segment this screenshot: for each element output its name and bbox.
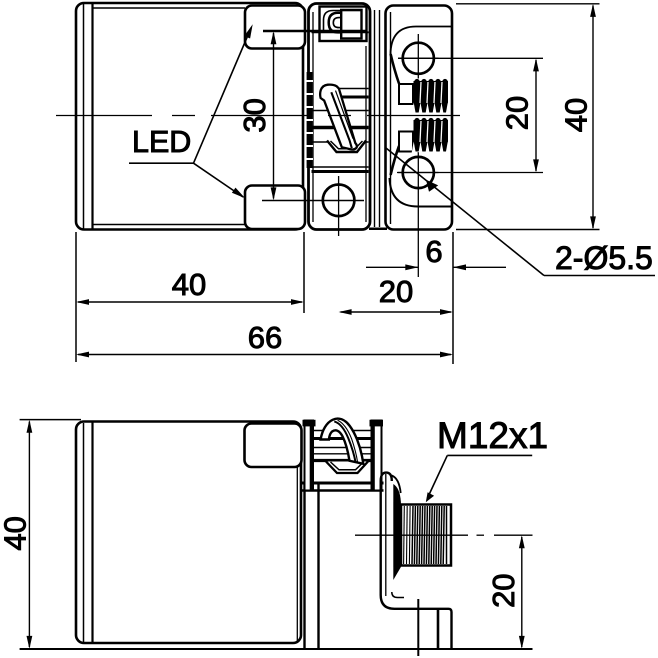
svg-text:40: 40 xyxy=(559,98,594,132)
svg-text:2-Ø5.5: 2-Ø5.5 xyxy=(555,240,653,276)
svg-text:M12x1: M12x1 xyxy=(437,415,548,456)
svg-text:LED: LED xyxy=(132,125,191,159)
svg-text:20: 20 xyxy=(379,274,413,309)
svg-text:40: 40 xyxy=(172,267,206,302)
svg-text:20: 20 xyxy=(486,573,521,607)
svg-text:6: 6 xyxy=(425,234,442,269)
svg-text:40: 40 xyxy=(0,516,32,550)
svg-text:30: 30 xyxy=(237,98,272,132)
svg-text:66: 66 xyxy=(248,320,282,355)
svg-text:20: 20 xyxy=(500,96,535,130)
